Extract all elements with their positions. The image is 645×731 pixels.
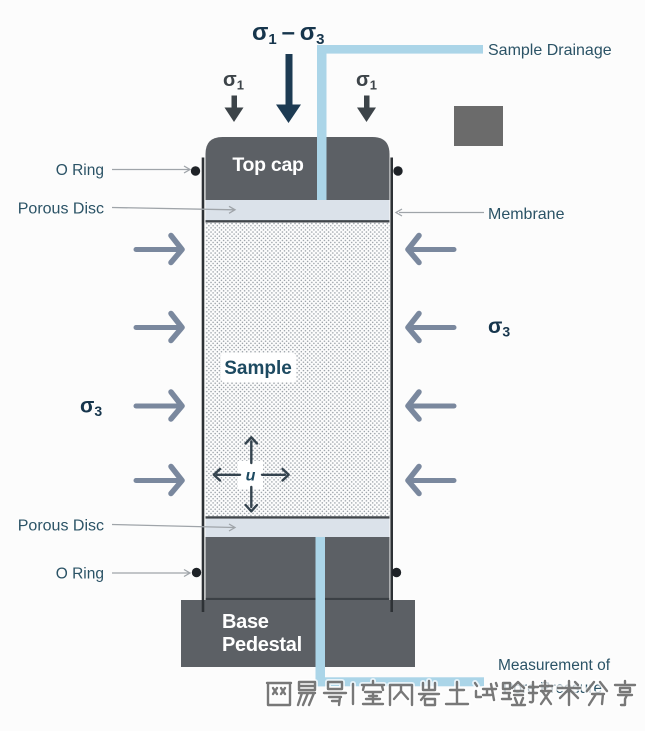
svg-text:Porous Disc: Porous Disc [18, 518, 104, 535]
svg-text:O Ring: O Ring [56, 566, 104, 583]
svg-text:Sample: Sample [224, 358, 292, 379]
svg-text:Top cap: Top cap [232, 154, 304, 176]
svg-text:Measurement of: Measurement of [498, 657, 611, 674]
svg-text:Porous Disc: Porous Disc [18, 201, 104, 218]
svg-text:O Ring: O Ring [56, 162, 104, 179]
svg-text:Pedestal: Pedestal [222, 634, 302, 656]
svg-text:Sample Drainage: Sample Drainage [488, 42, 612, 59]
svg-text:Base: Base [222, 611, 269, 633]
svg-text:u: u [246, 468, 256, 485]
svg-text:σ1 – σ3: σ1 – σ3 [252, 19, 325, 48]
svg-text:Membrane: Membrane [488, 206, 565, 223]
